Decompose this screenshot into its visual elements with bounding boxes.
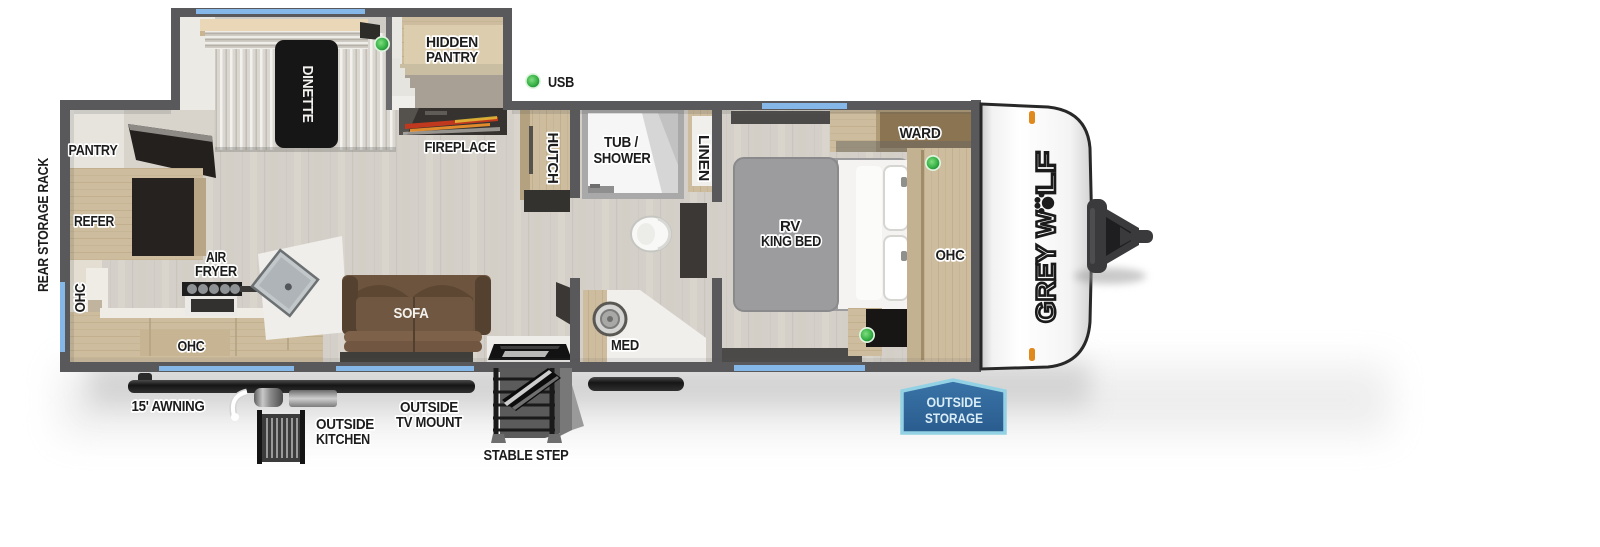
svg-text:GREY W: GREY W xyxy=(1031,210,1061,323)
svg-text:15' AWNING: 15' AWNING xyxy=(132,398,205,415)
svg-text:LINEN: LINEN xyxy=(695,135,712,181)
svg-text:USB: USB xyxy=(548,74,574,91)
svg-text:SHOWER: SHOWER xyxy=(594,150,651,167)
svg-text:KING BED: KING BED xyxy=(761,233,821,250)
svg-text:SOFA: SOFA xyxy=(394,305,429,322)
svg-text:PANTRY: PANTRY xyxy=(69,142,118,159)
svg-text:STABLE STEP: STABLE STEP xyxy=(484,447,569,464)
svg-text:STORAGE: STORAGE xyxy=(925,411,983,426)
svg-text:TV MOUNT: TV MOUNT xyxy=(396,414,462,431)
svg-text:REAR STORAGE RACK: REAR STORAGE RACK xyxy=(35,158,52,292)
svg-text:TUB /: TUB / xyxy=(604,134,639,151)
svg-text:FRYER: FRYER xyxy=(195,263,237,280)
svg-text:PANTRY: PANTRY xyxy=(426,49,478,66)
svg-text:REFER: REFER xyxy=(74,213,114,230)
svg-text:DINETTE: DINETTE xyxy=(299,66,316,123)
svg-text:OHC: OHC xyxy=(72,283,89,312)
svg-text:HUTCH: HUTCH xyxy=(544,133,561,184)
svg-text:OHC: OHC xyxy=(936,247,965,264)
svg-text:OUTSIDE: OUTSIDE xyxy=(927,395,982,410)
svg-text:WARD: WARD xyxy=(900,125,941,142)
svg-text:KITCHEN: KITCHEN xyxy=(316,431,370,448)
svg-text:FIREPLACE: FIREPLACE xyxy=(425,139,496,156)
svg-text:MED: MED xyxy=(611,337,639,354)
svg-text:OHC: OHC xyxy=(178,338,205,355)
svg-text:LF: LF xyxy=(1031,151,1061,195)
